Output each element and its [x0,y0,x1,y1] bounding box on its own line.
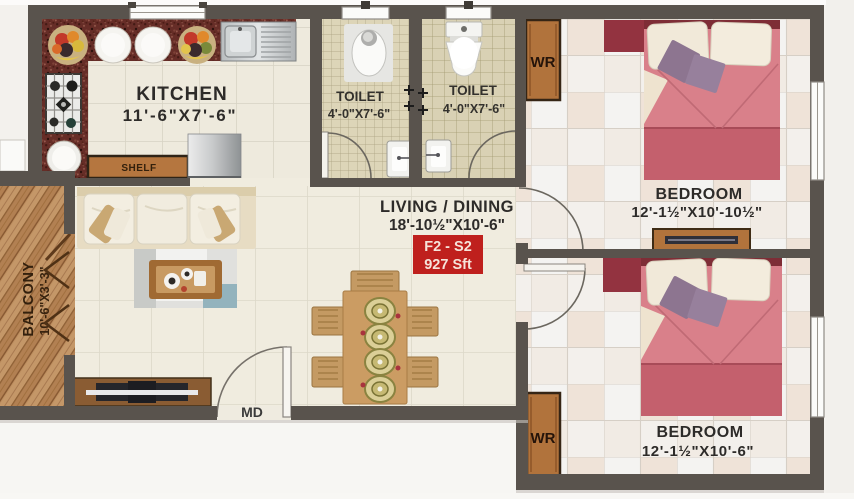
svg-text:12'-1½"X10'-6": 12'-1½"X10'-6" [642,443,754,460]
svg-text:SHELF: SHELF [121,163,156,174]
svg-text:11'-6"X7'-6": 11'-6"X7'-6" [123,106,238,125]
svg-text:WR: WR [531,54,556,71]
svg-text:18'-10½"X10'-6": 18'-10½"X10'-6" [389,217,505,234]
svg-text:BEDROOM: BEDROOM [656,424,743,441]
svg-text:MD: MD [241,404,263,420]
svg-text:LIVING / DINING: LIVING / DINING [380,198,514,216]
svg-text:4'-0"X7'-6": 4'-0"X7'-6" [328,107,390,121]
svg-text:WR: WR [531,430,556,447]
svg-text:12'-1½"X10'-10½": 12'-1½"X10'-10½" [631,204,762,221]
svg-text:F2 - S2: F2 - S2 [424,239,472,255]
svg-text:927 Sft: 927 Sft [424,257,472,273]
svg-text:4'-0"X7'-6": 4'-0"X7'-6" [443,102,505,116]
svg-text:KITCHEN: KITCHEN [136,84,227,105]
svg-text:TOILET: TOILET [449,83,498,98]
svg-text:BEDROOM: BEDROOM [655,186,742,203]
svg-text:BALCONY: BALCONY [21,261,37,336]
svg-text:TOILET: TOILET [336,89,385,104]
